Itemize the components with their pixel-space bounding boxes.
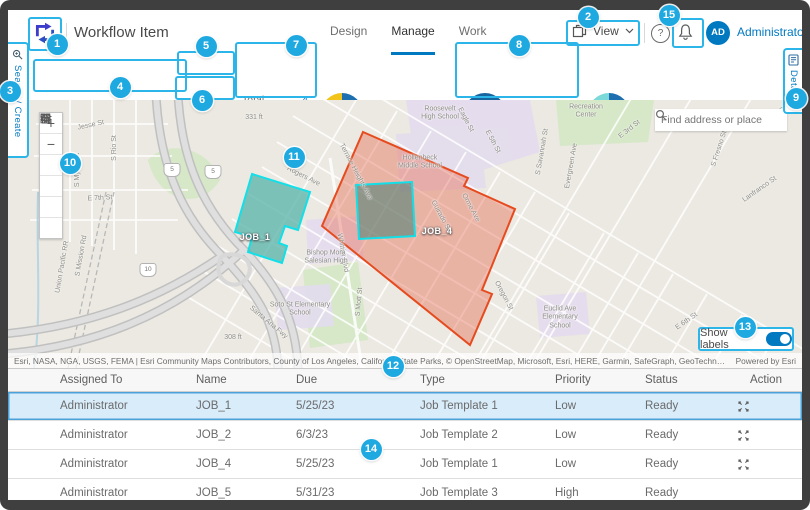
col-header-priority[interactable]: Priority bbox=[555, 374, 645, 386]
cell: Ready bbox=[645, 458, 737, 470]
map-canvas bbox=[8, 100, 802, 368]
cell: JOB_5 bbox=[196, 487, 296, 499]
map-search bbox=[655, 109, 787, 131]
attribution-text: Esri, NASA, NGA, USGS, FEMA | Esri Commu… bbox=[14, 356, 728, 366]
show-labels-label: Show labels bbox=[700, 327, 759, 351]
action-cell[interactable] bbox=[737, 458, 795, 471]
col-header-status[interactable]: Status bbox=[645, 374, 737, 386]
chevron-down-icon bbox=[625, 28, 634, 34]
map[interactable]: Jesse StS Myers StS Rio StE 7th StUnion … bbox=[8, 100, 802, 368]
col-header-name[interactable]: Name bbox=[196, 374, 296, 386]
avatar[interactable]: AD bbox=[706, 21, 730, 45]
cell: Job Template 1 bbox=[420, 400, 555, 412]
cell: 5/31/23 bbox=[296, 487, 420, 499]
legend-button[interactable] bbox=[40, 218, 62, 238]
cell: Job Template 1 bbox=[420, 458, 555, 470]
header-divider bbox=[66, 23, 67, 43]
cell: 5/25/23 bbox=[296, 400, 420, 412]
cell: Ready bbox=[645, 487, 737, 499]
layers-button[interactable] bbox=[40, 197, 62, 218]
action-cell[interactable] bbox=[737, 400, 795, 413]
cell: JOB_4 bbox=[196, 458, 296, 470]
cell: Administrator bbox=[60, 487, 196, 499]
view-dropdown[interactable]: View bbox=[572, 24, 634, 38]
details-label: Details bbox=[788, 70, 799, 102]
cell: 5/25/23 bbox=[296, 458, 420, 470]
powered-by-esri: Powered by Esri bbox=[736, 356, 796, 366]
highway-shield: 5 bbox=[205, 165, 222, 179]
zoom-to-icon[interactable] bbox=[737, 400, 750, 413]
workflow-manager-app: Workflow Item DesignManageWork View ? bbox=[8, 10, 802, 500]
header: Workflow Item DesignManageWork View ? bbox=[8, 10, 802, 56]
jobs-table: Assigned ToNameDueTypePriorityStatusActi… bbox=[8, 368, 802, 500]
home-button[interactable] bbox=[40, 155, 62, 176]
col-header-action[interactable]: Action bbox=[737, 374, 795, 386]
view-label: View bbox=[593, 24, 619, 38]
cell: Ready bbox=[645, 429, 737, 441]
col-header-due[interactable]: Due bbox=[296, 374, 420, 386]
cell: JOB_2 bbox=[196, 429, 296, 441]
cell: JOB_1 bbox=[196, 400, 296, 412]
basemap-button[interactable] bbox=[40, 176, 62, 197]
table-body: AdministratorJOB_15/25/23Job Template 1L… bbox=[8, 392, 802, 500]
cell: Administrator bbox=[60, 400, 196, 412]
job-inner-polygon[interactable] bbox=[356, 182, 415, 239]
search-create-label: Search / Create bbox=[12, 65, 23, 138]
cell: Administrator bbox=[60, 429, 196, 441]
header-divider-2 bbox=[644, 23, 645, 43]
col-header-type[interactable]: Type bbox=[420, 374, 555, 386]
cell: Low bbox=[555, 429, 645, 441]
nav-tabs: DesignManageWork bbox=[330, 10, 487, 55]
notifications-bell-icon[interactable] bbox=[677, 23, 694, 42]
show-labels-toggle[interactable] bbox=[766, 332, 792, 346]
map-attribution: Esri, NASA, NGA, USGS, FEMA | Esri Commu… bbox=[8, 353, 802, 368]
zoom-to-icon[interactable] bbox=[737, 458, 750, 471]
tab-work[interactable]: Work bbox=[459, 10, 487, 55]
app-window: Workflow Item DesignManageWork View ? bbox=[0, 0, 810, 510]
zoom-out-button[interactable]: − bbox=[40, 134, 62, 155]
details-tab[interactable]: Details bbox=[783, 48, 802, 114]
tab-design[interactable]: Design bbox=[330, 10, 367, 55]
highway-shield: 5 bbox=[164, 163, 181, 177]
list-icon bbox=[40, 113, 51, 122]
cell: Low bbox=[555, 400, 645, 412]
cell: Low bbox=[555, 458, 645, 470]
cell: 6/3/23 bbox=[296, 429, 420, 441]
workflow-logo-icon[interactable] bbox=[33, 21, 57, 45]
table-row-job_5[interactable]: AdministratorJOB_55/31/23Job Template 3H… bbox=[8, 479, 802, 500]
highway-shield: 10 bbox=[140, 263, 157, 277]
tab-manage[interactable]: Manage bbox=[391, 10, 434, 55]
cell: Administrator bbox=[60, 458, 196, 470]
toolbar: My Jobs Filter Gr bbox=[8, 55, 802, 101]
table-row-job_1[interactable]: AdministratorJOB_15/25/23Job Template 1L… bbox=[8, 392, 802, 421]
page-title: Workflow Item bbox=[74, 10, 169, 55]
cell: Job Template 3 bbox=[420, 487, 555, 499]
cell: Job Template 2 bbox=[420, 429, 555, 441]
col-header-assigned-to[interactable]: Assigned To bbox=[60, 374, 196, 386]
show-labels-control: Show labels bbox=[698, 327, 794, 351]
table-header: Assigned ToNameDueTypePriorityStatusActi… bbox=[8, 369, 802, 392]
search-create-tab[interactable]: Search / Create bbox=[8, 42, 29, 158]
cell: High bbox=[555, 487, 645, 499]
table-row-job_4[interactable]: AdministratorJOB_45/25/23Job Template 1L… bbox=[8, 450, 802, 479]
search-plus-icon bbox=[12, 49, 23, 60]
help-button[interactable]: ? bbox=[651, 24, 670, 43]
zoom-to-icon[interactable] bbox=[737, 429, 750, 442]
map-controls: + − bbox=[39, 112, 63, 239]
action-cell[interactable] bbox=[737, 429, 795, 442]
details-form-icon bbox=[788, 54, 799, 66]
view-icon bbox=[572, 24, 587, 38]
cell: Ready bbox=[645, 400, 737, 412]
table-row-job_2[interactable]: AdministratorJOB_26/3/23Job Template 2Lo… bbox=[8, 421, 802, 450]
search-input[interactable] bbox=[655, 114, 802, 126]
